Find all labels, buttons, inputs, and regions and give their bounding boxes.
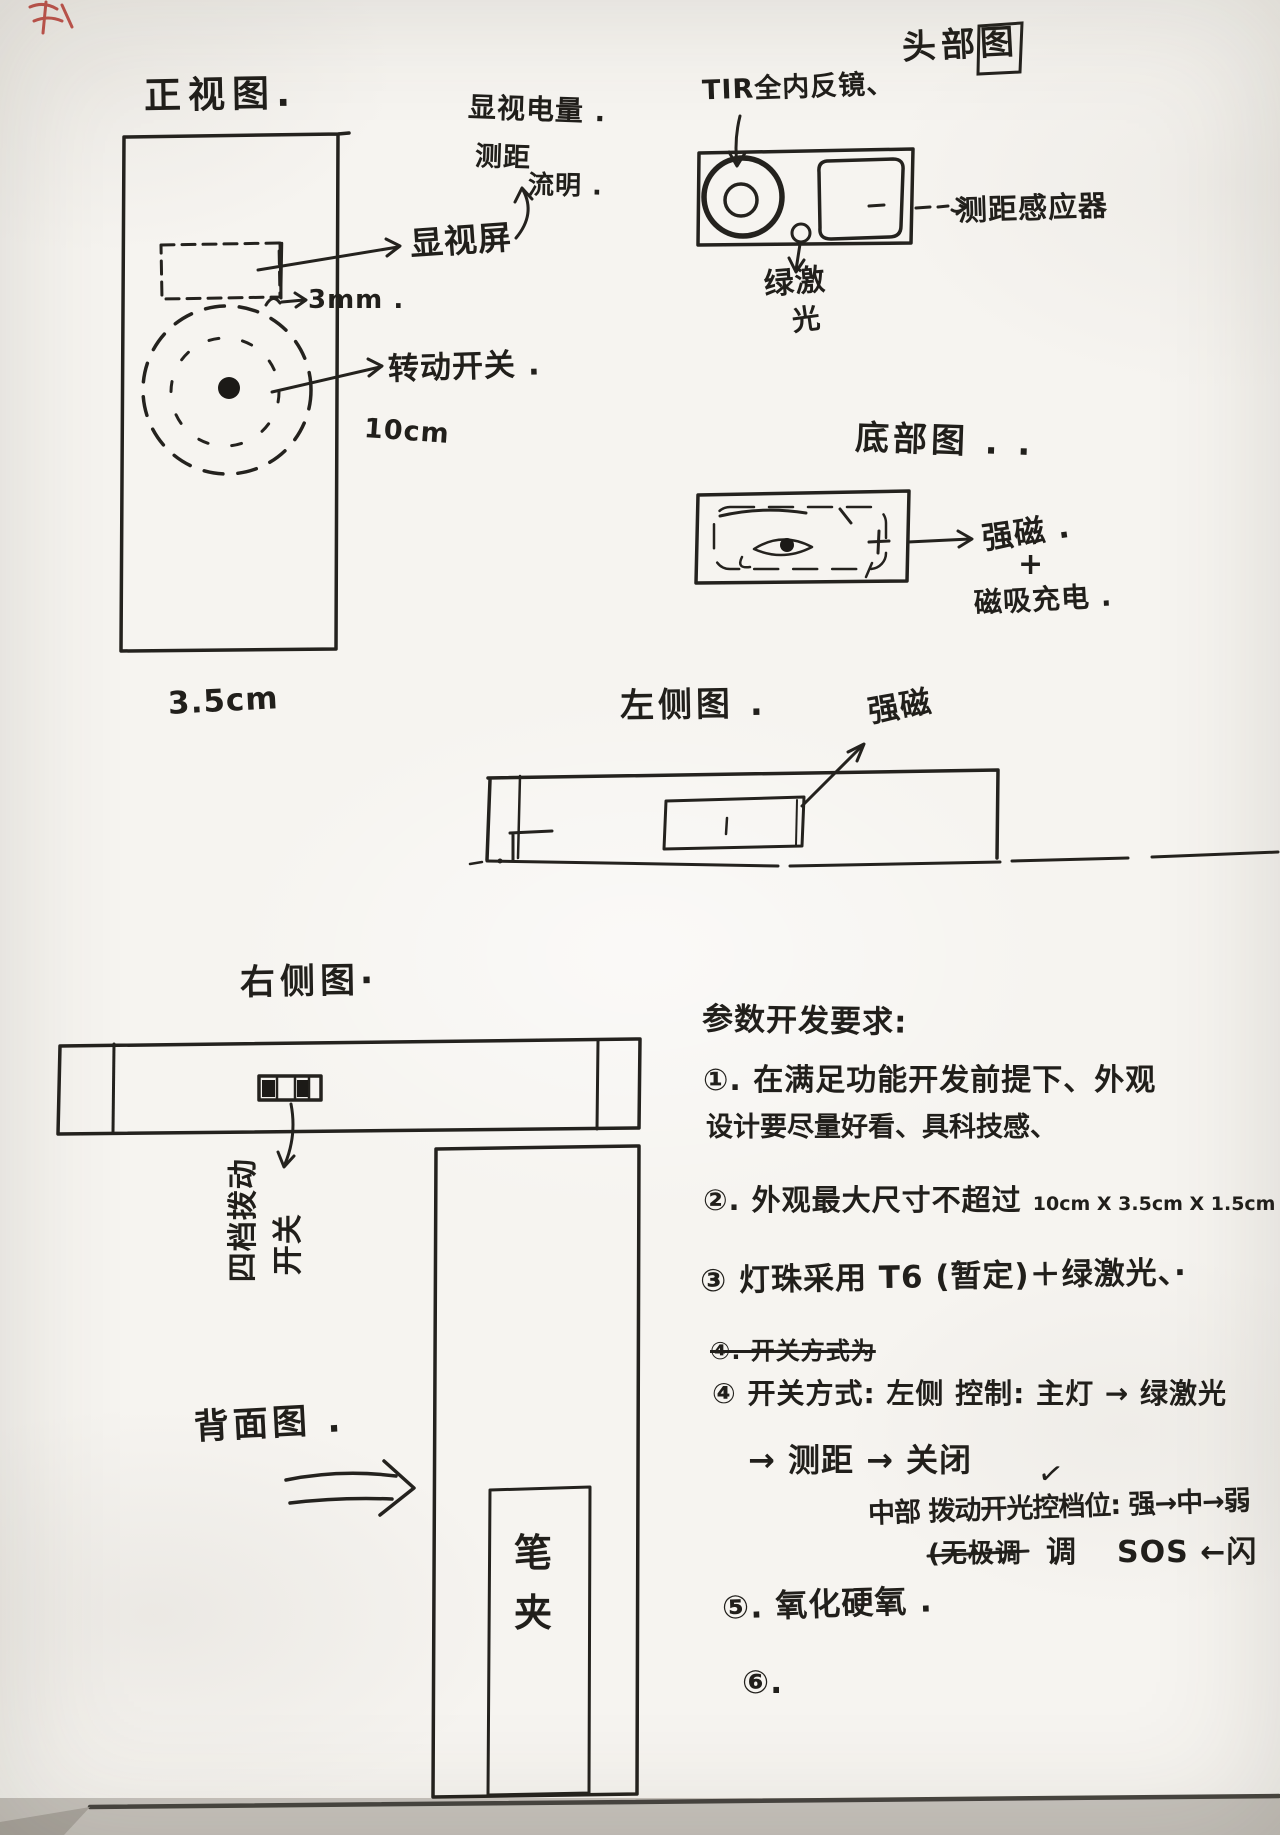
left-side-view-title: 左侧图 . bbox=[620, 685, 767, 727]
requirement-1-line1: ①. 在满足功能开发前提下、外观 bbox=[703, 1064, 1156, 1099]
screen-note-line1: 显视电量 . bbox=[467, 92, 606, 129]
toggle-switch-label-part2: 开关 bbox=[272, 1209, 307, 1279]
requirement-4-main: ④ 开关方式: 左侧 控制: 主灯 → 绿激光 bbox=[712, 1378, 1227, 1410]
red-corner-mark bbox=[30, 2, 72, 33]
rotary-switch-label: 转动开关 . bbox=[387, 347, 541, 388]
right-side-view-outline bbox=[58, 1039, 640, 1134]
head-view-outline bbox=[698, 149, 913, 245]
screen-note-line3: 流明 . bbox=[528, 171, 603, 202]
paper-corner-shadow bbox=[0, 1807, 90, 1835]
requirements-heading: 参数开发要求: bbox=[702, 1002, 908, 1041]
back-view-double-arrow bbox=[286, 1461, 414, 1515]
plus-sign: + bbox=[1018, 548, 1044, 583]
right-side-view-title: 右侧图· bbox=[240, 961, 379, 1004]
requirement-4-line2: → 测距 → 关闭 bbox=[748, 1442, 972, 1479]
requirement-2-text: ②. 外观最大尺寸不超过 bbox=[703, 1183, 1022, 1217]
display-screen-label: 显视屏 bbox=[409, 218, 513, 263]
requirement-2-dimensions: 10cm X 3.5cm X 1.5cm . bbox=[1033, 1193, 1280, 1215]
requirement-6: ⑥. bbox=[742, 1664, 783, 1701]
requirement-4-line4: (无极调 调 SOS ←闪 bbox=[928, 1536, 1257, 1571]
head-view-title: 头部图 bbox=[901, 23, 1020, 68]
hand-drawn-product-sketch: 正视图. 显视电量 . 测距 流明 . 显视屏 3mm . 转动开关 . 10c… bbox=[0, 0, 1280, 1835]
requirement-1-line2: 设计要尽量好看、具科技感、 bbox=[706, 1112, 1057, 1143]
requirement-4-line4-struck: (无极调 bbox=[928, 1539, 1022, 1569]
pen-clip-label-char1: 笔 bbox=[514, 1532, 553, 1576]
screen-note-line2: 测距 bbox=[474, 141, 531, 174]
pen-clip-label-char2: 夹 bbox=[514, 1592, 553, 1636]
bottom-view-arrow bbox=[908, 531, 972, 547]
left-side-view-outline bbox=[470, 770, 1278, 866]
toggle-switch-label-part1: 四档拨动 bbox=[227, 1153, 262, 1287]
green-laser-label-line2: 光 bbox=[790, 302, 823, 338]
left-side-magnet-arrow bbox=[802, 744, 864, 806]
paper-edge bbox=[90, 1796, 1279, 1807]
requirement-5: ⑤. 氧化硬氧 . bbox=[721, 1582, 933, 1626]
head-view-arrows bbox=[729, 116, 967, 272]
back-view-outline bbox=[433, 1146, 639, 1797]
requirement-4-struck: ④. 开关方式为 bbox=[710, 1338, 876, 1366]
requirement-4-line4-end: SOS ←闪 bbox=[1117, 1535, 1257, 1570]
front-view-outline bbox=[121, 133, 349, 651]
back-view-title: 背面图 . bbox=[193, 1400, 345, 1448]
bottom-view-title: 底部图 . . bbox=[854, 419, 1035, 464]
gap-dimension-label: 3mm . bbox=[308, 286, 404, 316]
green-laser-label-line1: 绿激 bbox=[763, 263, 828, 303]
requirement-4-line4-mid: 调 bbox=[1046, 1535, 1077, 1570]
distance-sensor-label: 测距感应器 bbox=[957, 189, 1108, 228]
switch-arrow bbox=[278, 1104, 294, 1167]
front-view-title: 正视图. bbox=[144, 73, 298, 118]
width-dimension-label: 3.5cm bbox=[167, 681, 279, 722]
requirement-2: ②. 外观最大尺寸不超过 10cm X 3.5cm X 1.5cm . bbox=[703, 1184, 1280, 1217]
length-dimension-label: 10cm bbox=[363, 413, 451, 450]
bottom-view-outline bbox=[696, 491, 909, 583]
